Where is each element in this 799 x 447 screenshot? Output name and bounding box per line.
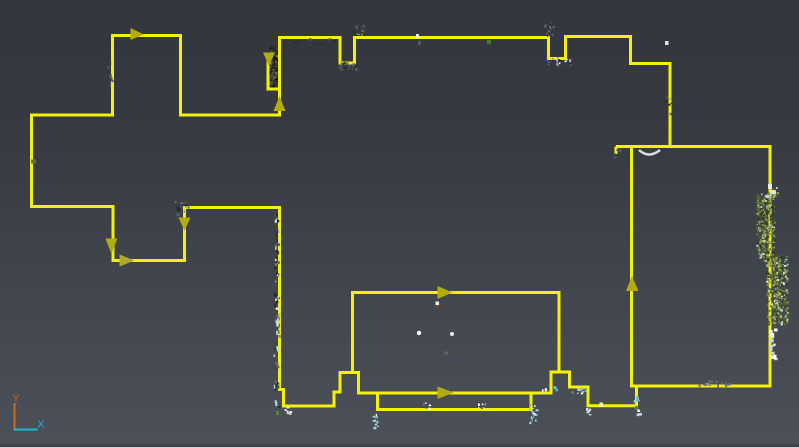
svg-text:Y: Y [13,393,20,405]
svg-text:X: X [38,419,45,431]
